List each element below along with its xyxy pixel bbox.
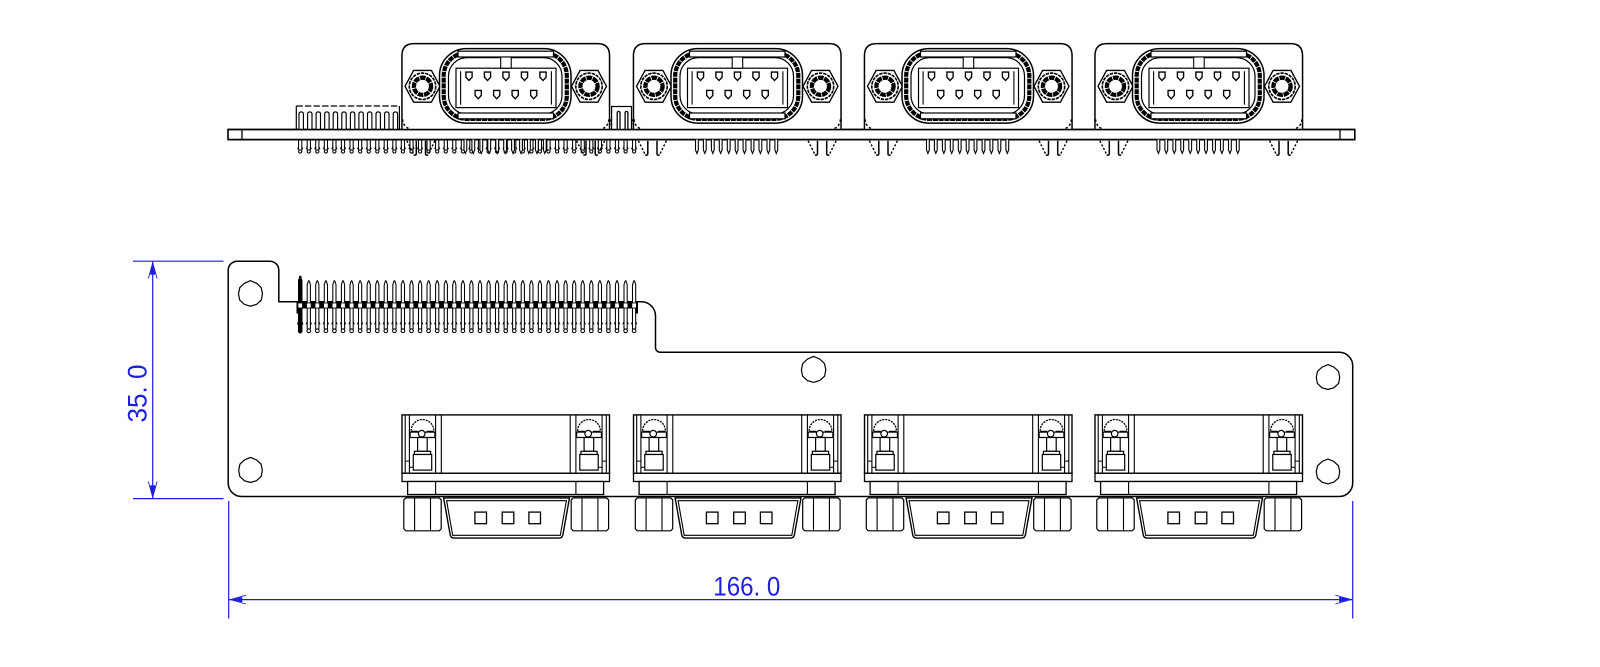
svg-text:35. 0: 35. 0: [123, 365, 153, 423]
svg-text:166. 0: 166. 0: [713, 572, 780, 602]
